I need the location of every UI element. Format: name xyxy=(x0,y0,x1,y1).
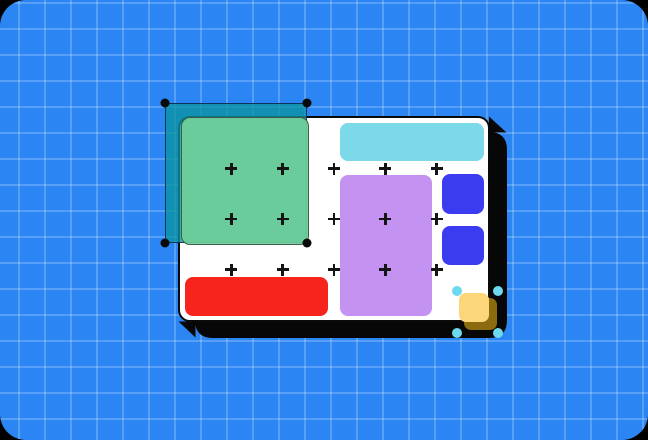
resize-handle-bottom-right[interactable] xyxy=(493,328,503,338)
selection-handle-top-right[interactable] xyxy=(303,99,312,108)
selection-handle-bottom-right[interactable] xyxy=(303,239,312,248)
green-rectangle[interactable] xyxy=(181,117,309,245)
blue-square-1[interactable] xyxy=(442,174,484,214)
resize-handle-bottom-left[interactable] xyxy=(452,328,462,338)
purple-rectangle[interactable] xyxy=(340,175,432,316)
illustration-stage xyxy=(0,0,648,440)
artboard-shadow-bevel-top-right xyxy=(489,117,507,133)
blue-square-2[interactable] xyxy=(442,226,484,265)
red-bar[interactable] xyxy=(185,277,328,316)
resize-handle-top-left[interactable] xyxy=(452,286,462,296)
yellow-square[interactable] xyxy=(459,293,489,322)
cyan-bar[interactable] xyxy=(340,123,484,161)
selection-handle-bottom-left[interactable] xyxy=(161,239,170,248)
artboard-shadow-bevel-bottom-left xyxy=(179,322,196,338)
resize-handle-top-right[interactable] xyxy=(493,286,503,296)
selection-handle-top-left[interactable] xyxy=(161,99,170,108)
